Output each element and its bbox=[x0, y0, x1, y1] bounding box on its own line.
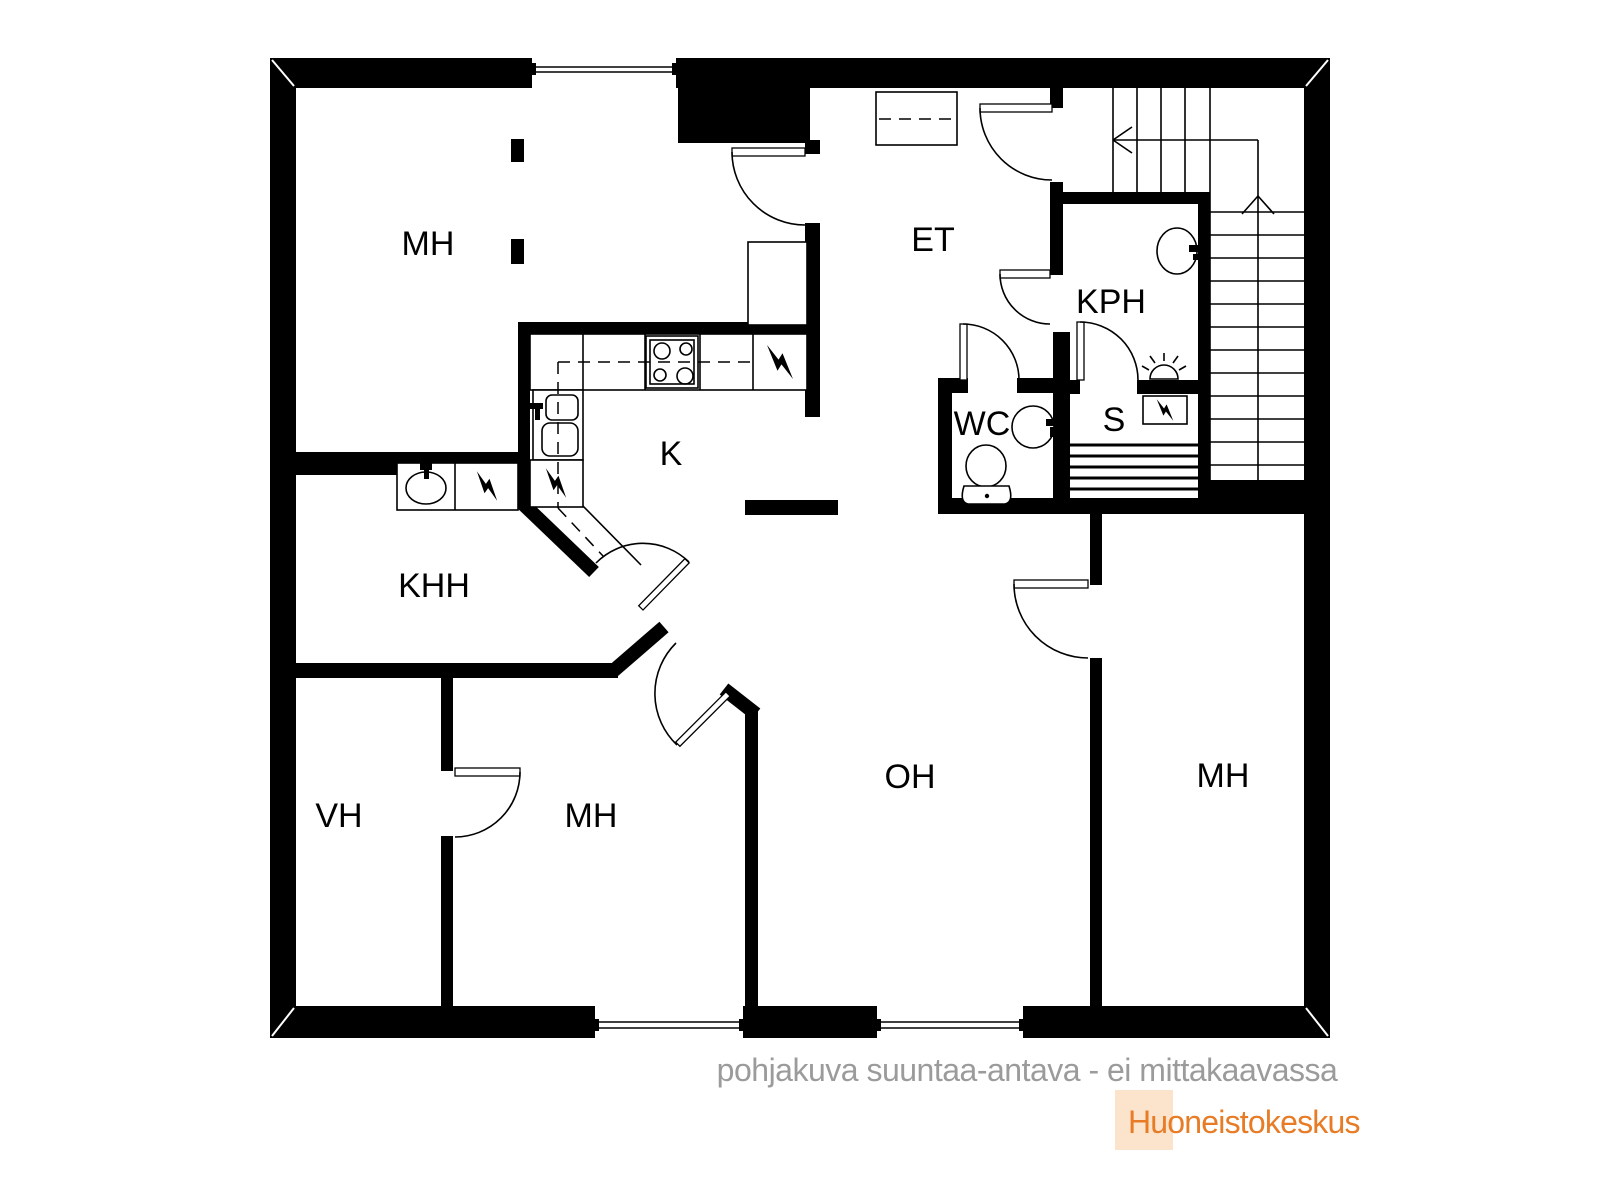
window-bottom-right bbox=[877, 1006, 1023, 1038]
room-label-bathroom: KPH bbox=[1076, 283, 1146, 321]
floor-plan-drawing: MH ET KPH WC S K KHH VH MH OH MH pohjaku… bbox=[0, 0, 1600, 1200]
kitchen-sink-icon bbox=[529, 390, 583, 460]
door-kitchen-khh bbox=[596, 543, 689, 610]
door-vh-bedroom bbox=[455, 768, 520, 837]
room-label-bedroom-bottom: MH bbox=[565, 797, 618, 835]
room-label-closet: VH bbox=[315, 797, 362, 835]
sauna-electrical-panel-icon bbox=[1143, 396, 1187, 424]
sauna-light-icon bbox=[1142, 353, 1186, 379]
window-top bbox=[532, 58, 676, 88]
stove-icon bbox=[646, 336, 698, 388]
toilet-icon bbox=[962, 445, 1011, 504]
room-label-hallway: ET bbox=[911, 221, 954, 259]
room-label-sauna: S bbox=[1103, 401, 1126, 439]
window-bottom-left bbox=[595, 1006, 743, 1038]
wardrobe-icon bbox=[876, 92, 957, 145]
brand-logo-text: Huoneistokeskus bbox=[1128, 1104, 1360, 1140]
door-et-kitchen bbox=[732, 148, 805, 225]
kph-washbasin-icon bbox=[1157, 228, 1201, 274]
door-kph-sauna bbox=[1077, 322, 1138, 380]
disclaimer-caption: pohjakuva suuntaa-antava - ei mittakaava… bbox=[717, 1052, 1338, 1088]
room-label-bedroom-top-left: MH bbox=[402, 225, 455, 263]
door-et-kph bbox=[1000, 270, 1050, 324]
brand-logo: Huoneistokeskus bbox=[1115, 1090, 1360, 1150]
wc-washbasin-icon bbox=[1012, 406, 1057, 448]
door-oh-bedroom-right bbox=[1014, 580, 1088, 658]
room-label-kitchen: K bbox=[660, 435, 683, 473]
door-entry bbox=[980, 104, 1052, 180]
kitchen-dashed-counter-line bbox=[558, 362, 753, 565]
door-wc bbox=[960, 324, 1019, 380]
kitchen-fusebox-icon bbox=[530, 460, 583, 507]
room-label-toilet: WC bbox=[954, 405, 1011, 443]
floor-plan-page: MH ET KPH WC S K KHH VH MH OH MH pohjaku… bbox=[0, 0, 1600, 1200]
room-label-bedroom-right: MH bbox=[1197, 757, 1250, 795]
door-kitchen-bedroom-bottom bbox=[655, 643, 730, 746]
fridge-cabinet bbox=[748, 242, 807, 325]
sauna-benches bbox=[1070, 445, 1198, 489]
utility-counter bbox=[397, 463, 518, 510]
outer-walls bbox=[270, 58, 1330, 1038]
room-label-living-room: OH bbox=[885, 758, 936, 796]
room-label-utility: KHH bbox=[398, 567, 470, 605]
